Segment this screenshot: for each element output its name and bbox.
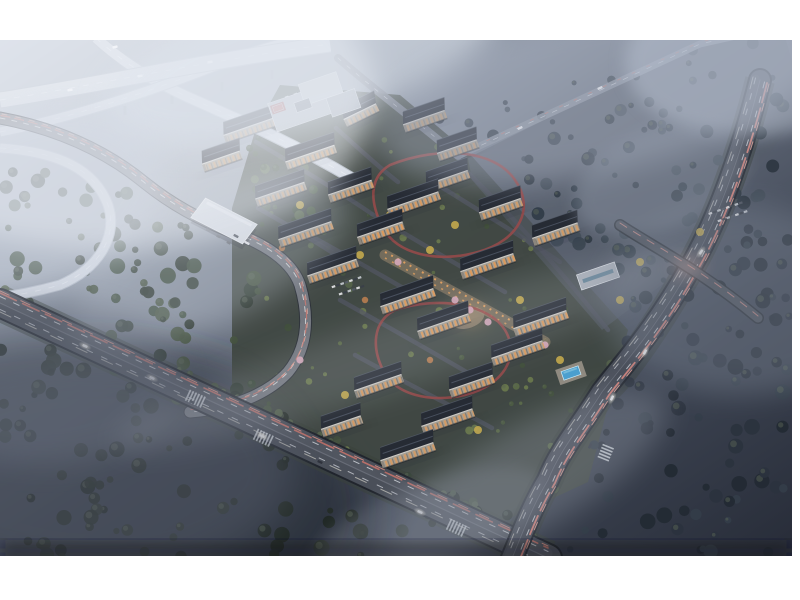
tree — [656, 507, 672, 523]
tree-highlight — [778, 422, 783, 427]
tree — [703, 484, 710, 491]
tree — [524, 385, 528, 389]
bottom-vignette — [0, 545, 792, 556]
tree-highlight — [543, 385, 545, 387]
tree-highlight — [730, 440, 737, 447]
tree-highlight — [673, 403, 680, 410]
tree-highlight — [501, 421, 503, 423]
tree — [230, 336, 238, 344]
architectural-rendering-page — [0, 0, 800, 600]
tree-highlight — [514, 384, 517, 387]
tree — [520, 363, 525, 368]
tree — [779, 484, 788, 493]
tree — [709, 489, 722, 502]
tree — [668, 390, 679, 401]
tree-highlight — [347, 511, 353, 517]
tree — [744, 419, 760, 435]
tree — [274, 527, 290, 543]
tree — [731, 424, 743, 436]
tree-highlight — [614, 245, 620, 251]
tree-highlight — [760, 469, 765, 474]
tree — [598, 528, 608, 538]
tree — [731, 476, 747, 492]
tree — [496, 429, 500, 433]
tree — [323, 516, 335, 528]
tree-highlight — [725, 497, 730, 502]
orange-tree — [362, 297, 368, 303]
tree-highlight — [549, 392, 552, 395]
tree-highlight — [520, 402, 521, 403]
tree — [436, 239, 440, 243]
tree-highlight — [440, 205, 442, 207]
tree-highlight — [178, 358, 184, 364]
blossom-tree — [394, 258, 401, 265]
autumn-tree — [474, 426, 482, 434]
tree — [695, 413, 703, 421]
tree — [666, 428, 675, 437]
tree-highlight — [586, 236, 590, 240]
tree-highlight — [529, 247, 531, 249]
tree — [725, 459, 734, 468]
tree-highlight — [380, 177, 382, 179]
autumn-tree — [426, 246, 434, 254]
tree — [766, 160, 779, 173]
scene-canvas — [0, 40, 792, 556]
autumn-tree — [356, 251, 364, 259]
tree-highlight — [636, 382, 640, 386]
tree — [582, 527, 590, 535]
tree — [601, 235, 609, 243]
tree — [432, 271, 436, 275]
tree-highlight — [367, 214, 369, 216]
tree-highlight — [725, 518, 728, 521]
tree-highlight — [555, 192, 558, 195]
tree — [753, 189, 765, 201]
tree — [465, 427, 473, 435]
tree — [602, 491, 613, 502]
tree — [484, 224, 489, 229]
tree — [679, 506, 690, 517]
tree-highlight — [533, 209, 539, 215]
tree — [284, 324, 291, 331]
tree-highlight — [502, 385, 505, 388]
tree-highlight — [712, 533, 716, 537]
tree — [327, 508, 333, 514]
tree — [690, 509, 701, 520]
tree — [640, 514, 656, 530]
autumn-tree — [451, 221, 459, 229]
tree — [519, 402, 522, 405]
tree-highlight — [509, 402, 511, 404]
tree — [528, 377, 534, 383]
tree-highlight — [673, 525, 678, 530]
aerial-render-image — [0, 40, 792, 556]
autumn-tree — [556, 356, 564, 364]
tree — [664, 464, 677, 477]
tree — [572, 237, 585, 250]
